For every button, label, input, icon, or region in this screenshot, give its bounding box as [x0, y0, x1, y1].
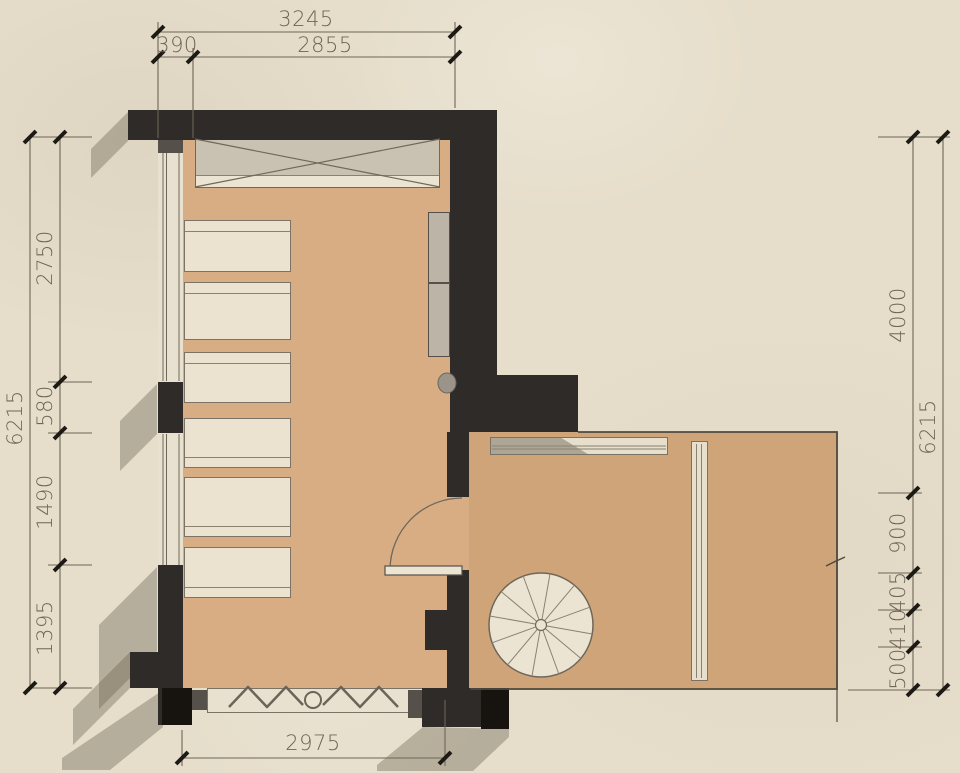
- dimension-ticks: [24, 26, 949, 764]
- dim-label-left-2750: 2750: [33, 230, 57, 285]
- dim-label-top-2855: 2855: [297, 33, 352, 57]
- folding-door-pivot: [305, 692, 321, 708]
- dim-label-right-500: 500: [886, 648, 910, 690]
- dim-label-right-overall: 6215: [916, 399, 940, 454]
- dim-label-top-overall: 3245: [278, 7, 333, 31]
- dim-label-left-1490: 1490: [33, 474, 57, 529]
- door-swing-arc: [390, 498, 462, 570]
- door-leaf: [385, 566, 462, 575]
- break-mark: [826, 557, 845, 566]
- spiral-staircase: [489, 573, 593, 677]
- floor-plan-canvas: 3245 390 2855 2750 580 1490 1395 6215 40…: [0, 0, 960, 773]
- dim-label-bottom-overall: 2975: [285, 731, 340, 755]
- dim-label-right-4000: 4000: [886, 287, 910, 342]
- dim-label-left-580: 580: [33, 385, 57, 427]
- folding-door: [229, 687, 398, 708]
- dim-label-left-overall: 6215: [3, 390, 27, 445]
- spiral-staircase-newel: [536, 620, 547, 631]
- door-knob: [438, 373, 456, 393]
- dimension-lines: [28, 22, 950, 766]
- dim-label-right-410: 410: [886, 608, 910, 650]
- wardrobe-cross: [195, 139, 440, 187]
- dim-label-top-390: 390: [156, 33, 198, 57]
- window-glazing: [163, 153, 179, 565]
- dim-label-left-1395: 1395: [33, 600, 57, 655]
- dim-label-right-405: 405: [886, 571, 910, 613]
- linework-layer: 3245 390 2855 2750 580 1490 1395 6215 40…: [0, 0, 960, 773]
- dim-label-right-900: 900: [886, 512, 910, 554]
